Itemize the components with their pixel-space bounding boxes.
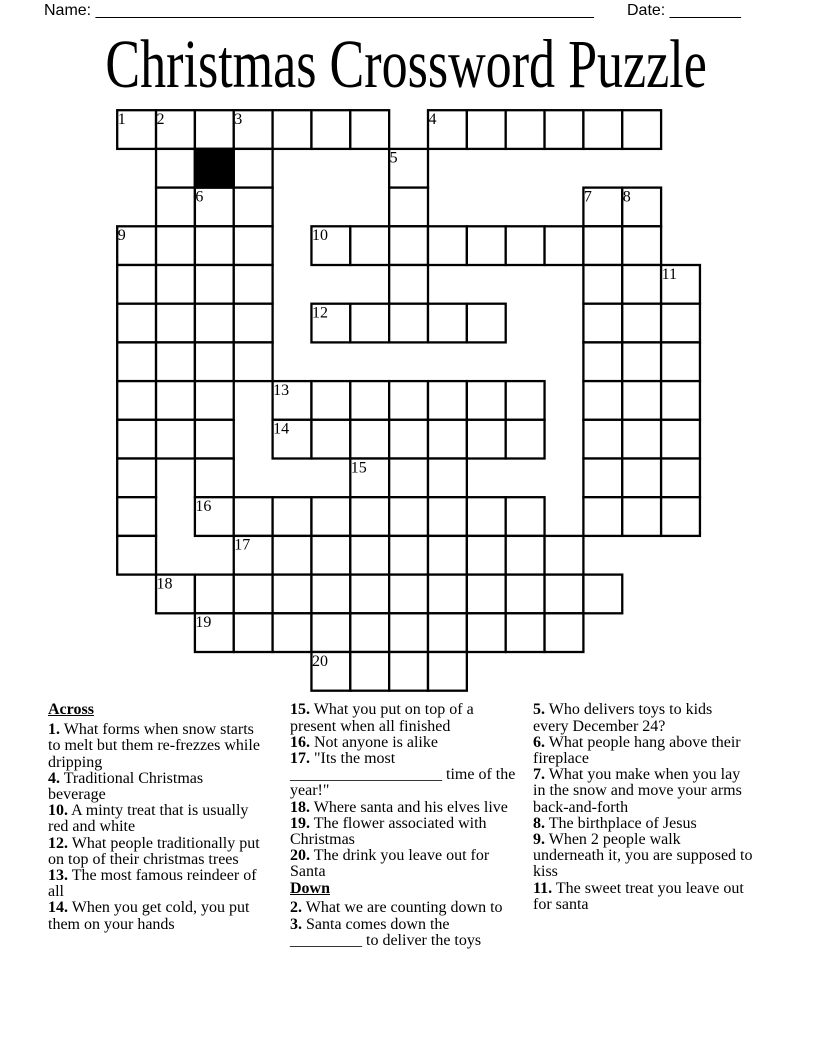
svg-text:6: 6: [195, 188, 203, 205]
svg-text:15: 15: [351, 459, 367, 476]
svg-text:1: 1: [118, 111, 126, 128]
svg-text:2: 2: [157, 111, 165, 128]
svg-text:7: 7: [584, 188, 592, 205]
svg-text:5: 5: [390, 150, 398, 167]
svg-text:4: 4: [429, 111, 437, 128]
svg-text:14: 14: [273, 421, 289, 438]
svg-text:3: 3: [234, 111, 242, 128]
svg-text:19: 19: [195, 614, 211, 631]
svg-text:10: 10: [312, 227, 328, 244]
svg-text:20: 20: [312, 653, 328, 670]
svg-text:13: 13: [273, 382, 289, 399]
svg-text:11: 11: [662, 266, 677, 283]
svg-text:17: 17: [234, 537, 250, 554]
svg-text:18: 18: [157, 575, 173, 592]
svg-text:12: 12: [312, 305, 328, 322]
svg-text:9: 9: [118, 227, 126, 244]
svg-text:16: 16: [195, 498, 211, 515]
svg-text:8: 8: [623, 188, 631, 205]
